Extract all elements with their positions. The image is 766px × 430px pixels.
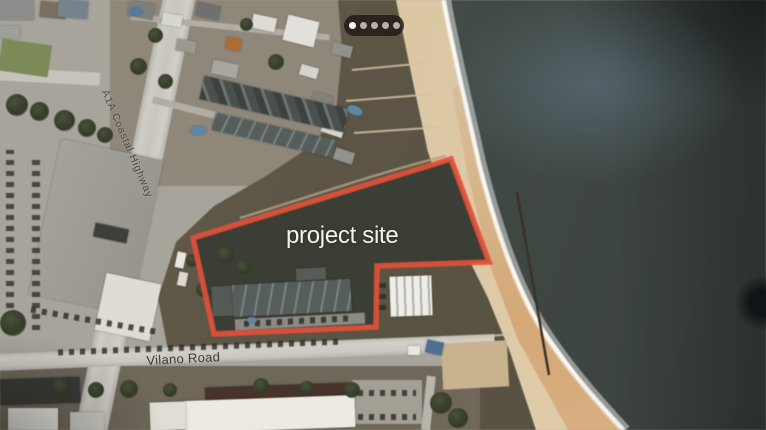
dirt-track [240,156,446,218]
carousel-dot[interactable] [382,22,389,29]
carousel-dot[interactable] [360,22,367,29]
carousel-dot[interactable] [349,22,356,29]
carousel-dot[interactable] [371,22,378,29]
satellite-imagery [0,0,766,430]
map-overlay-graphics [0,0,766,430]
carousel-dot[interactable] [393,22,400,29]
project-site-label: project site [286,222,398,250]
image-carousel-dots [344,15,404,36]
carousel-slide-aerial-map: A1A Coastal Highway Vilano Road project … [0,0,766,430]
